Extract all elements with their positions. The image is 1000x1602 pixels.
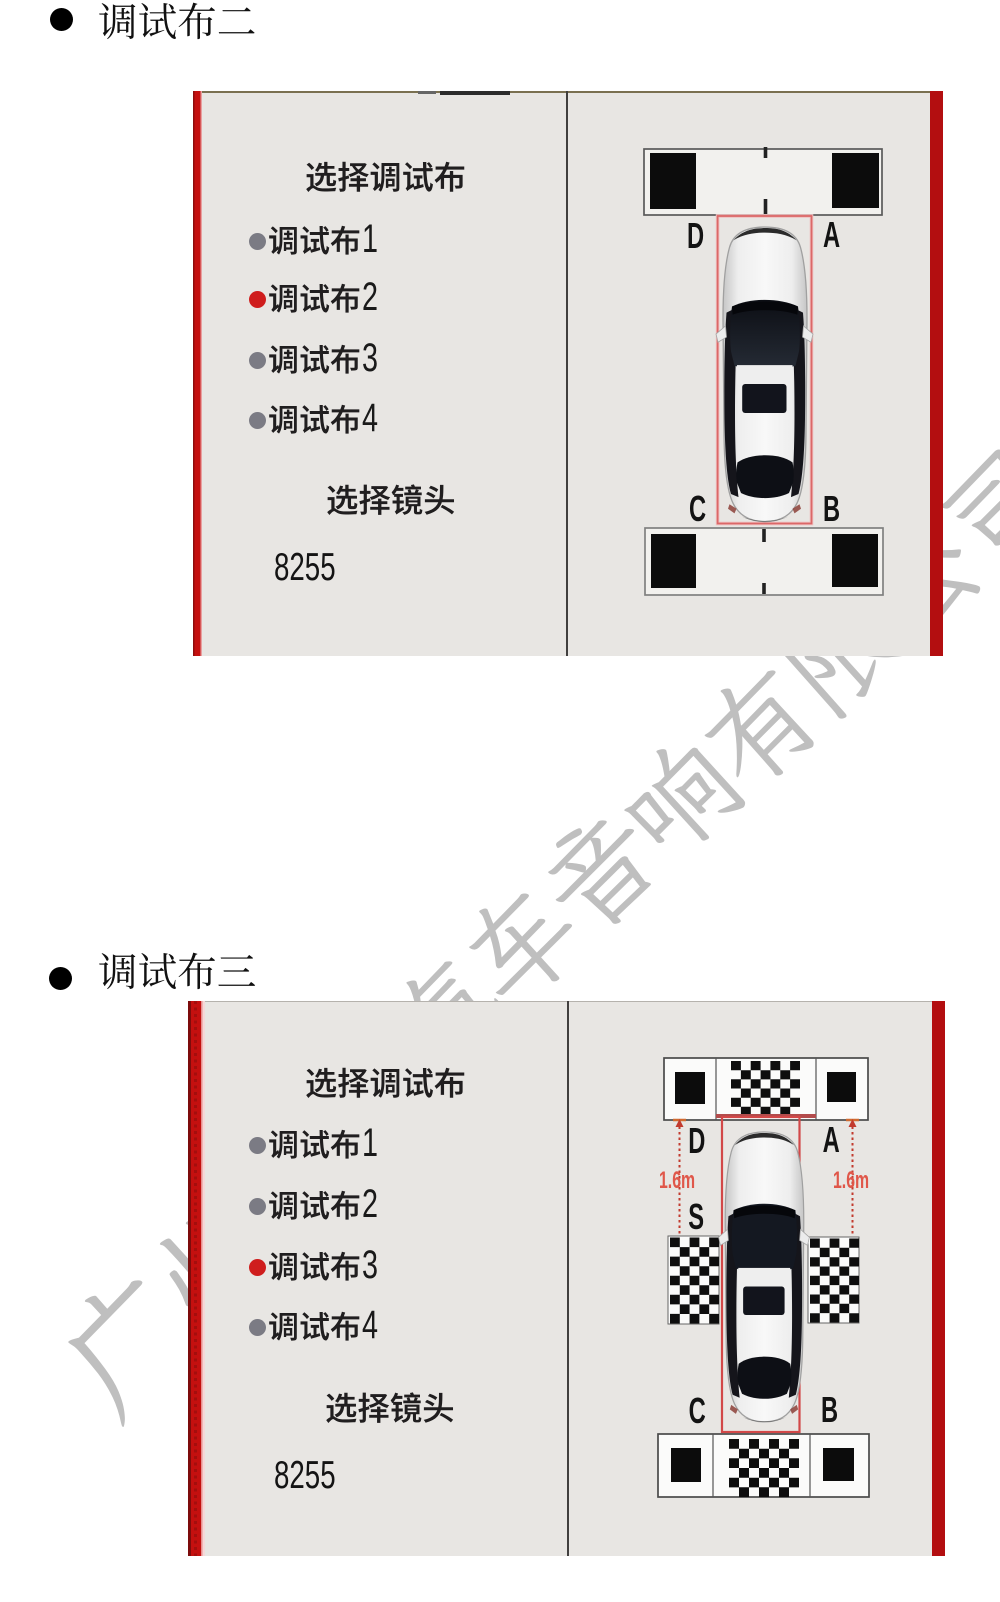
svg-text:4: 4 (362, 1302, 378, 1347)
svg-text:1: 1 (362, 1120, 378, 1165)
svg-text:1.6m: 1.6m (659, 1168, 695, 1194)
svg-text:C: C (689, 488, 706, 530)
svg-text:A: A (823, 214, 840, 256)
svg-text:2: 2 (362, 274, 378, 319)
svg-text:C: C (689, 1390, 706, 1432)
svg-text:1: 1 (362, 216, 378, 261)
svg-text:B: B (823, 488, 840, 530)
svg-text:D: D (688, 1120, 705, 1162)
svg-text:2: 2 (362, 1181, 378, 1226)
svg-text:3: 3 (362, 1242, 378, 1287)
svg-text:3: 3 (362, 335, 378, 380)
svg-text:D: D (687, 215, 704, 257)
svg-text:S: S (688, 1196, 704, 1238)
svg-text:A: A (823, 1119, 840, 1161)
svg-text:1.6m: 1.6m (833, 1168, 869, 1194)
svg-text:4: 4 (362, 395, 378, 440)
svg-text:8255: 8255 (274, 1454, 336, 1496)
svg-text:B: B (821, 1389, 838, 1431)
svg-text:8255: 8255 (274, 546, 336, 588)
